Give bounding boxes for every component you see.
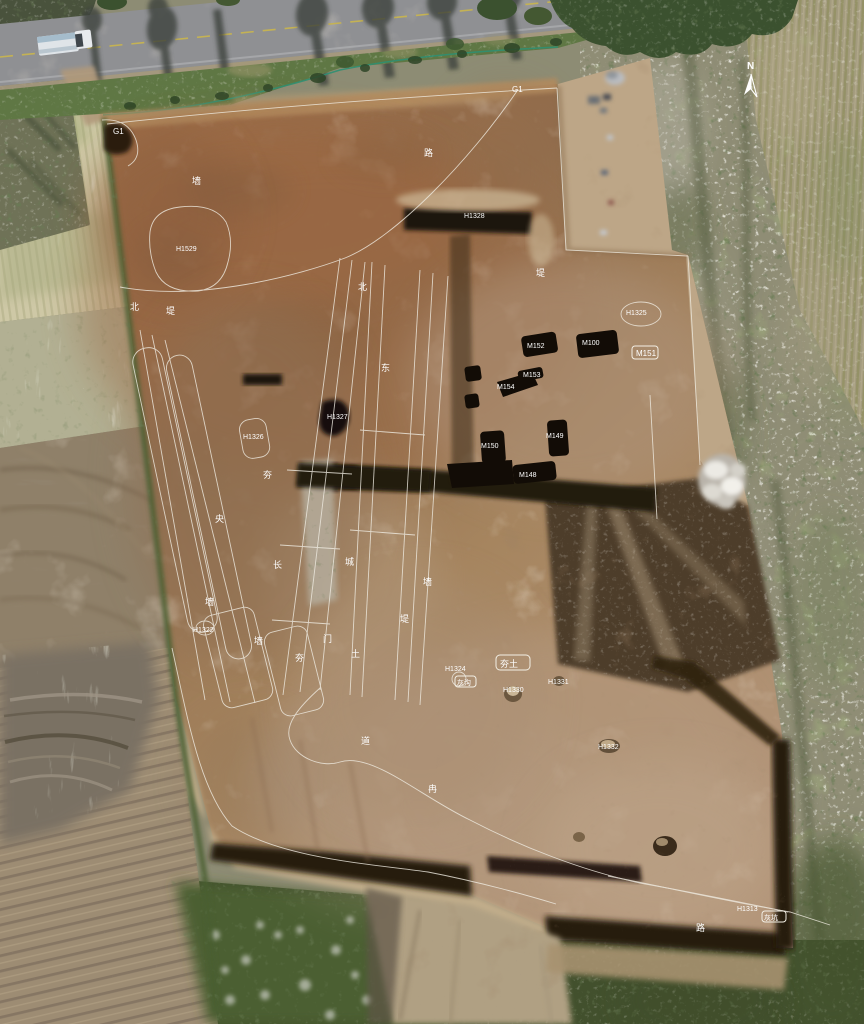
svg-text:灰坑: 灰坑 xyxy=(764,913,778,922)
svg-text:道: 道 xyxy=(361,735,370,746)
svg-text:M150: M150 xyxy=(481,443,499,450)
svg-text:夯: 夯 xyxy=(263,469,272,480)
svg-text:墙: 墙 xyxy=(205,596,214,607)
svg-text:北: 北 xyxy=(130,302,139,312)
svg-text:G1: G1 xyxy=(512,85,523,94)
svg-text:路: 路 xyxy=(424,147,433,158)
svg-text:G1: G1 xyxy=(113,127,124,136)
svg-text:堤: 堤 xyxy=(400,614,409,624)
svg-text:M152: M152 xyxy=(527,343,545,350)
svg-text:灰沟: 灰沟 xyxy=(457,678,471,687)
svg-text:M153: M153 xyxy=(523,372,541,379)
svg-text:北: 北 xyxy=(358,282,367,292)
svg-text:东: 东 xyxy=(381,362,390,373)
svg-text:H1313: H1313 xyxy=(737,906,758,913)
svg-text:N: N xyxy=(747,61,754,72)
svg-text:墙: 墙 xyxy=(254,635,263,646)
svg-text:M151: M151 xyxy=(636,349,657,358)
svg-text:墙: 墙 xyxy=(423,576,432,587)
svg-text:堤: 堤 xyxy=(166,306,175,316)
svg-text:H1327: H1327 xyxy=(327,414,348,421)
svg-text:城: 城 xyxy=(345,557,354,567)
svg-text:M149: M149 xyxy=(546,433,564,440)
svg-text:H1529: H1529 xyxy=(176,246,197,253)
svg-text:M148: M148 xyxy=(519,472,537,479)
svg-text:夯: 夯 xyxy=(295,652,304,663)
svg-text:堤: 堤 xyxy=(536,268,545,278)
svg-text:门: 门 xyxy=(323,633,332,644)
svg-text:H1332: H1332 xyxy=(598,744,619,751)
svg-text:墙: 墙 xyxy=(192,175,201,186)
svg-text:H1325: H1325 xyxy=(626,310,647,317)
svg-text:H1324: H1324 xyxy=(445,666,466,673)
svg-text:路: 路 xyxy=(696,922,705,933)
svg-text:H1330: H1330 xyxy=(503,687,524,694)
svg-text:H1326: H1326 xyxy=(243,434,264,441)
svg-text:央: 央 xyxy=(215,513,224,524)
svg-text:土: 土 xyxy=(351,648,360,659)
svg-text:M154: M154 xyxy=(497,384,515,391)
svg-text:M100: M100 xyxy=(582,340,600,347)
svg-text:H1331: H1331 xyxy=(548,679,569,686)
svg-text:夯土: 夯土 xyxy=(500,658,518,669)
svg-text:冉: 冉 xyxy=(428,783,437,794)
svg-text:H1328: H1328 xyxy=(464,213,485,220)
svg-text:H1322: H1322 xyxy=(193,627,214,634)
svg-text:长: 长 xyxy=(273,559,282,570)
